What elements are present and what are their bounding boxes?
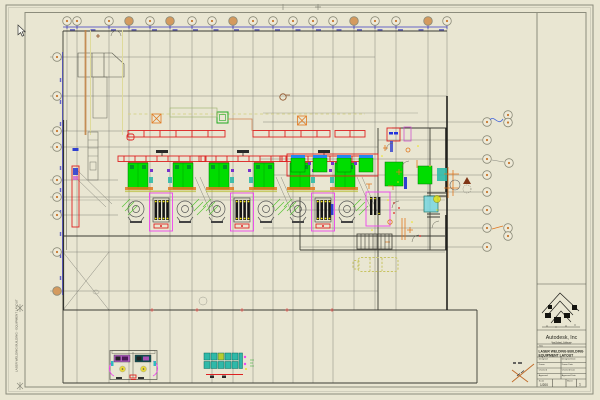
field-checked: Checked xyxy=(539,370,548,372)
margin-plot-stamp: LASER WELDING BUILDING - EQUIPMENT LAYOU… xyxy=(15,299,19,372)
drawing-title-line2: EQUIPMENT LAYOUT xyxy=(539,353,575,357)
field-designed-date: Designed Date xyxy=(562,358,577,361)
company-subtitle: San Rafael, California xyxy=(551,341,572,344)
field-drawn-date: Drawn Date xyxy=(562,363,574,366)
field-approved-date: Approved Date xyxy=(562,374,577,377)
field-drawn: Drawn xyxy=(539,363,546,366)
scale-value: 1/200 xyxy=(540,383,548,387)
field-approved: Approved xyxy=(539,374,549,377)
field-checked-date: Checked Date xyxy=(562,369,576,372)
sheet-value: 1 xyxy=(579,383,581,387)
cad-drawing-canvas[interactable]: Autodesk, Inc San Rafael, California Tit… xyxy=(0,0,600,400)
field-designed: Designed xyxy=(539,359,549,361)
sheet-label: Sheet xyxy=(567,380,573,383)
company-name: Autodesk, Inc xyxy=(546,335,578,341)
